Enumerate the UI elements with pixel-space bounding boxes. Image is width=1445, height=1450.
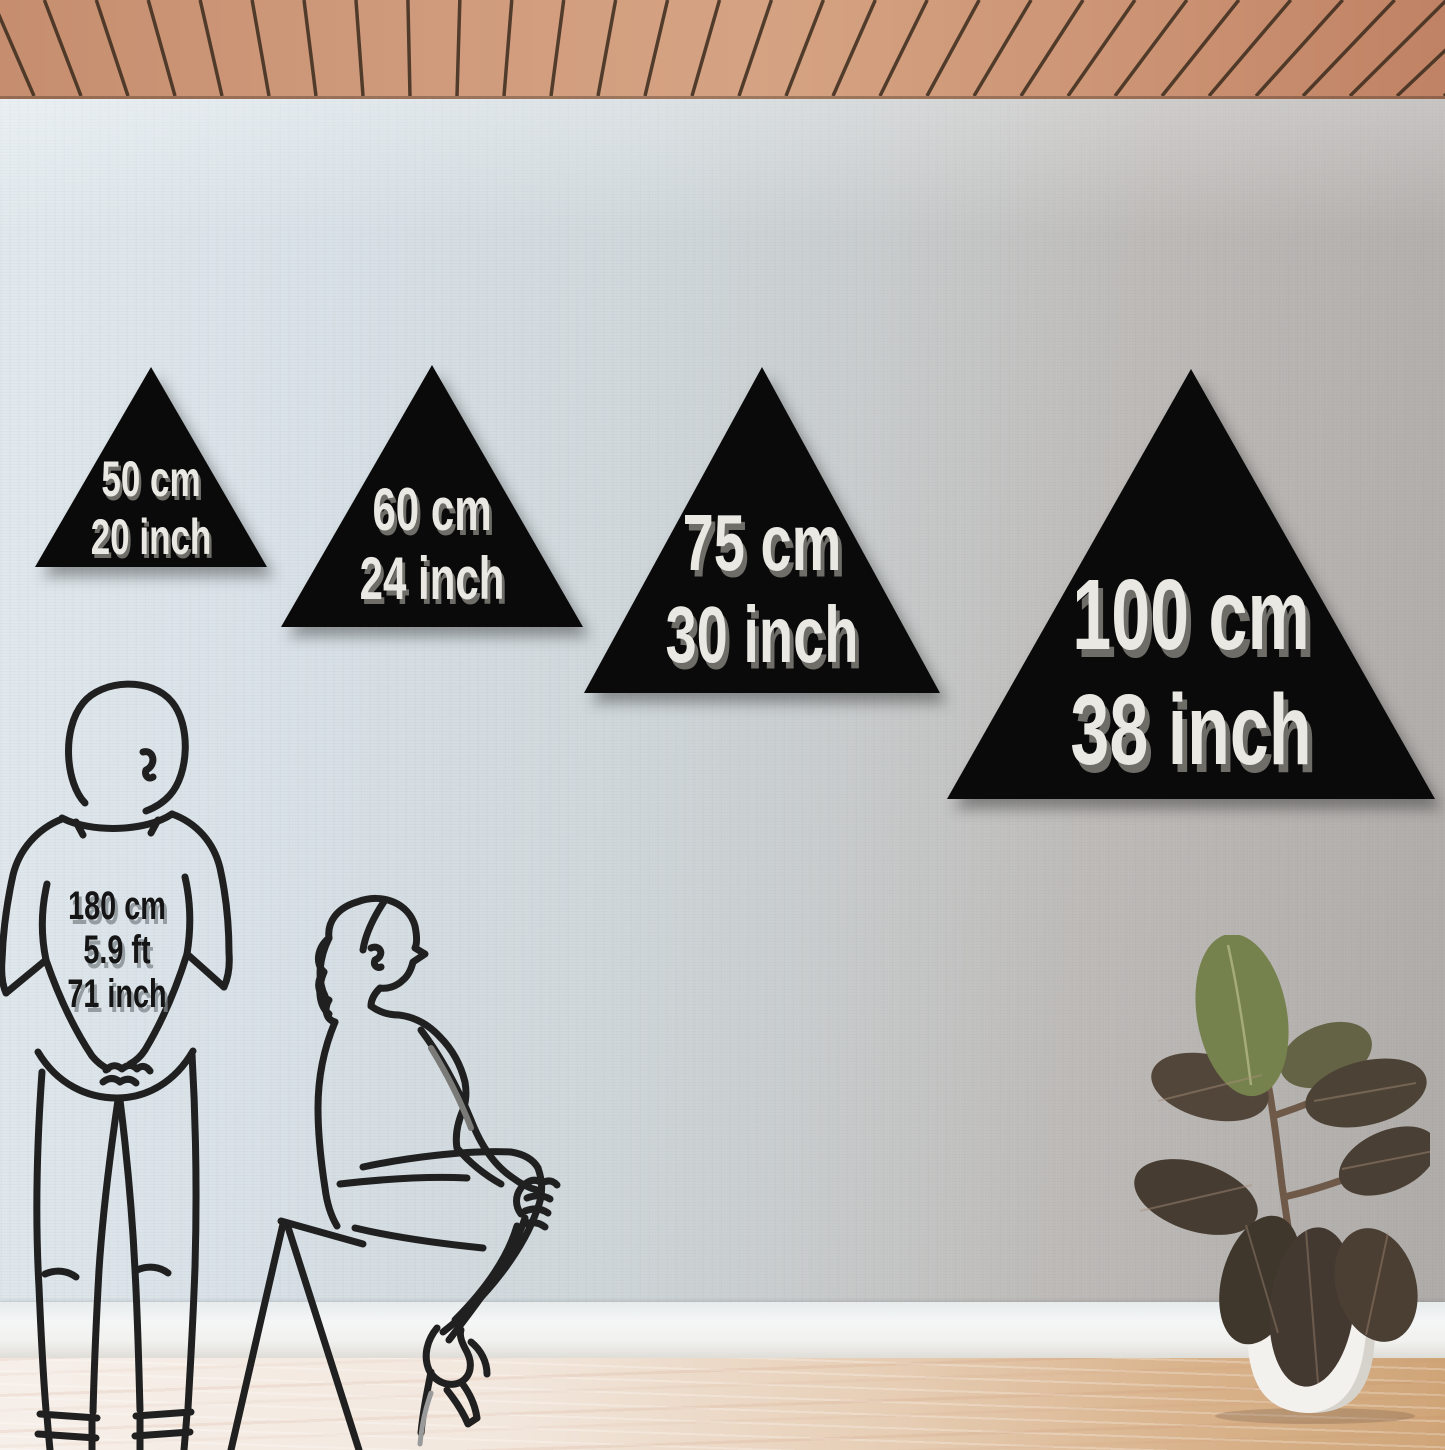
ceiling-slat-gap-line <box>645 0 668 96</box>
height-cm: 180 cm <box>59 884 174 928</box>
ceiling-slat-gap-line <box>1350 0 1445 96</box>
ceiling-slat-gap-line <box>356 0 363 96</box>
ceiling-slat-gap-line <box>1021 0 1083 96</box>
ceiling-slat-gap-line <box>927 0 979 96</box>
triangle-size-label: 50 cm 20 inch <box>70 451 232 566</box>
triangle-size-label: 100 cm 38 inch <box>1020 558 1362 788</box>
triangle-shape: 50 cm 20 inch <box>35 367 267 567</box>
ceiling-slat-gap-line <box>44 0 81 96</box>
triangle-shape: 100 cm 38 inch <box>947 369 1435 799</box>
plant-leaves-back <box>1130 935 1430 1249</box>
ceiling-slat-gap-line <box>1397 0 1445 96</box>
size-inch: 30 inch <box>637 589 886 681</box>
ceiling-slat-gap-line <box>974 0 1031 96</box>
ceiling-slat-gap-line <box>692 0 720 96</box>
ceiling-slat-gap-line <box>304 0 316 96</box>
height-ft: 5.9 ft <box>59 928 174 972</box>
ceiling-slat-gap-line <box>148 0 175 96</box>
stool <box>231 1221 363 1450</box>
scene-room: 50 cm 20 inch 60 cm 24 inch 75 cm 30 inc… <box>0 0 1445 1450</box>
woman-torso-arms <box>318 1006 557 1227</box>
man-legs <box>37 1054 196 1450</box>
size-inch: 20 inch <box>70 509 232 567</box>
size-triangle-100cm: 100 cm 38 inch <box>947 369 1435 799</box>
woman-hair-part <box>363 900 385 950</box>
ceiling-slat-gap-line <box>0 0 34 96</box>
ceiling-slat-gap-line <box>252 0 269 96</box>
size-cm: 60 cm <box>326 475 537 544</box>
size-cm: 100 cm <box>1020 558 1362 673</box>
ceiling-slat-gap-line <box>598 0 616 96</box>
size-triangle-60cm: 60 cm 24 inch <box>281 365 583 627</box>
ceiling-slat-gap-line <box>880 0 927 96</box>
potted-rubber-plant <box>1130 935 1430 1425</box>
ceiling-slat-gap-line <box>786 0 823 96</box>
size-triangle-75cm: 75 cm 30 inch <box>584 367 940 693</box>
size-inch: 38 inch <box>1020 673 1362 788</box>
ceiling-slat-gap-line <box>1209 0 1291 96</box>
ceiling-slat-gap-line <box>504 0 512 96</box>
size-cm: 75 cm <box>637 497 886 589</box>
triangle-shape: 75 cm 30 inch <box>584 367 940 693</box>
size-triangle-50cm: 50 cm 20 inch <box>35 367 267 567</box>
standing-man-line-art <box>0 672 250 1450</box>
size-cm: 50 cm <box>70 451 232 509</box>
triangle-size-label: 60 cm 24 inch <box>326 475 537 613</box>
ceiling-slat-gap-line <box>833 0 875 96</box>
man-head <box>69 684 186 811</box>
man-hands <box>106 1066 150 1072</box>
seated-woman-line-art <box>225 888 605 1450</box>
plant-leaves-front <box>1205 1206 1430 1391</box>
ceiling-slat-gap-line <box>1256 0 1343 96</box>
ceiling-slat-gap-line <box>1303 0 1395 96</box>
ceiling-slat-gap-line <box>457 0 460 96</box>
size-inch: 24 inch <box>326 544 537 613</box>
triangle-size-label: 75 cm 30 inch <box>637 497 886 681</box>
ceiling-slat-gap-line <box>200 0 222 96</box>
ceiling-slat-gap-line <box>96 0 128 96</box>
ceiling-slat-gap-line <box>1162 0 1239 96</box>
woman-legs <box>340 1152 542 1444</box>
woman-ear <box>371 947 381 967</box>
ceiling-slat-gap-line <box>551 0 564 96</box>
ceiling-slats-svg <box>0 0 1445 96</box>
triangle-shape: 60 cm 24 inch <box>281 365 583 627</box>
ceiling-wood-slats <box>0 0 1445 99</box>
person-height-label: 180 cm 5.9 ft 71 inch <box>59 884 174 1016</box>
man-ear <box>143 752 153 778</box>
man-hands <box>103 1079 136 1084</box>
ceiling-slat-gap-line <box>739 0 771 96</box>
height-inch: 71 inch <box>59 972 174 1016</box>
ceiling-slat-gap-line <box>408 0 410 96</box>
